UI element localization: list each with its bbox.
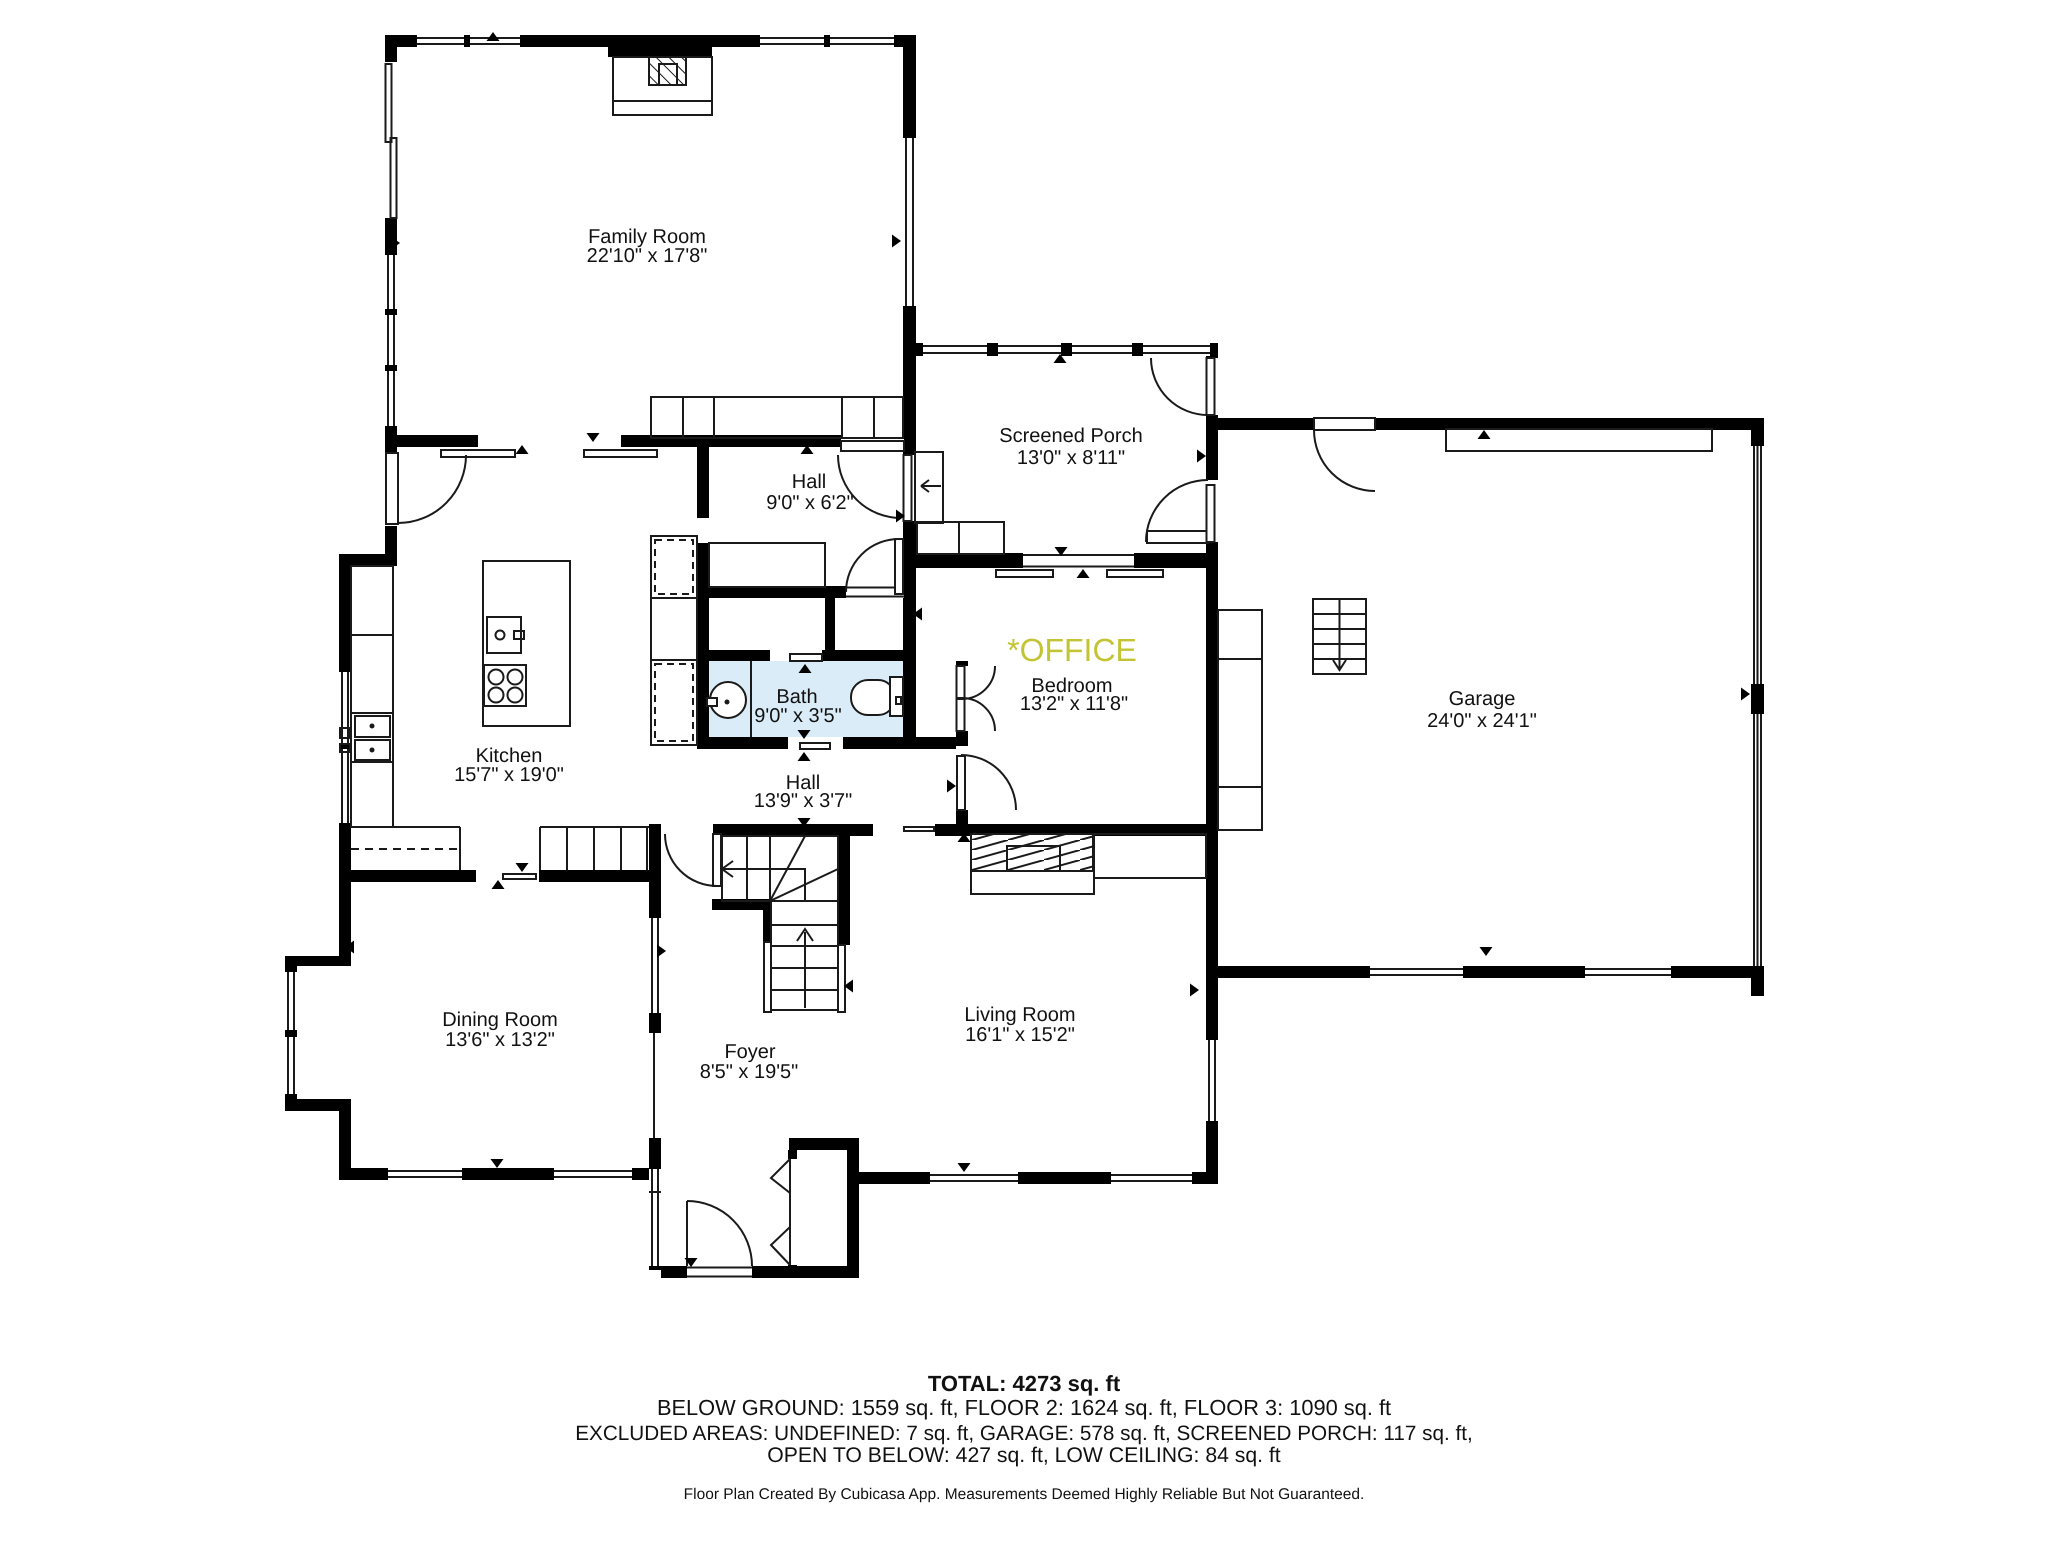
svg-text:16'1" x 15'2": 16'1" x 15'2" [965,1024,1075,1046]
svg-text:22'10" x 17'8": 22'10" x 17'8" [587,245,708,267]
svg-text:Screened Porch: Screened Porch [999,425,1142,447]
svg-text:Garage: Garage [1449,688,1516,710]
svg-text:TOTAL: 4273 sq. ft: TOTAL: 4273 sq. ft [928,1371,1121,1396]
svg-text:9'0" x 6'2": 9'0" x 6'2" [766,492,853,514]
svg-text:Living Room: Living Room [964,1004,1075,1026]
svg-text:*OFFICE: *OFFICE [1007,632,1137,668]
svg-text:Dining Room: Dining Room [442,1009,558,1031]
svg-text:Hall: Hall [792,471,826,493]
svg-text:EXCLUDED AREAS: UNDEFINED: 7 s: EXCLUDED AREAS: UNDEFINED: 7 sq. ft, GAR… [575,1422,1473,1445]
svg-text:Floor Plan Created By Cubicasa: Floor Plan Created By Cubicasa App. Meas… [684,1486,1365,1503]
svg-text:8'5" x 19'5": 8'5" x 19'5" [700,1061,799,1083]
svg-text:13'6" x 13'2": 13'6" x 13'2" [445,1029,555,1051]
svg-text:15'7" x 19'0": 15'7" x 19'0" [454,764,564,786]
svg-text:13'2" x 11'8": 13'2" x 11'8" [1020,693,1128,715]
svg-text:Foyer: Foyer [724,1041,775,1063]
svg-text:13'0" x 8'11": 13'0" x 8'11" [1017,447,1125,469]
svg-text:24'0" x 24'1": 24'0" x 24'1" [1427,710,1537,732]
svg-text:9'0" x 3'5": 9'0" x 3'5" [754,705,841,727]
svg-text:OPEN TO BELOW: 427 sq. ft, LOW: OPEN TO BELOW: 427 sq. ft, LOW CEILING: … [767,1444,1281,1467]
svg-text:13'9" x 3'7": 13'9" x 3'7" [754,790,853,812]
svg-text:BELOW GROUND: 1559 sq. ft, FLO: BELOW GROUND: 1559 sq. ft, FLOOR 2: 1624… [657,1395,1391,1420]
